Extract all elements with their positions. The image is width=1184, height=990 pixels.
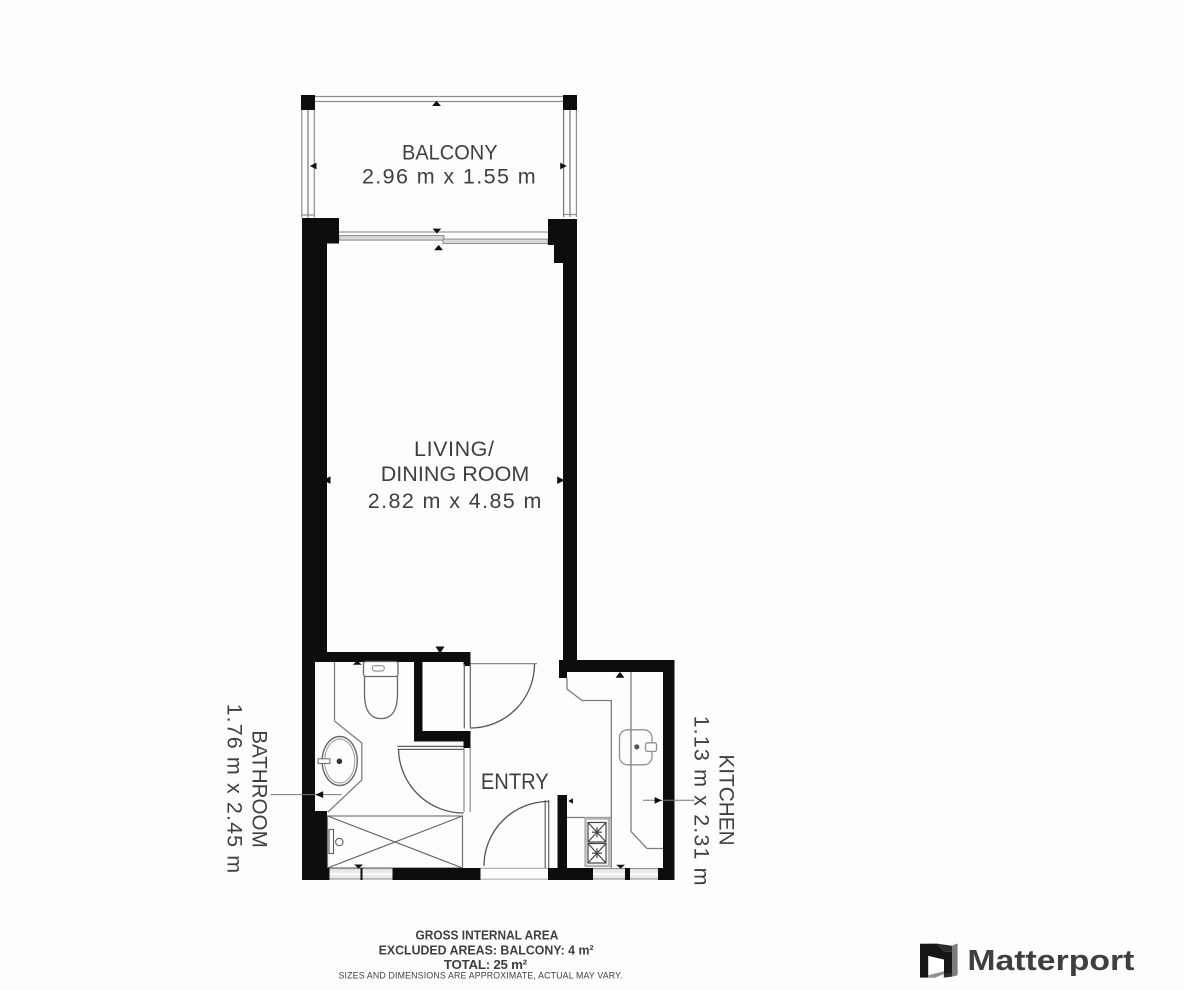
svg-text:EXCLUDED AREAS: BALCONY: 4 m²: EXCLUDED AREAS: BALCONY: 4 m²	[379, 943, 595, 958]
svg-text:Matterport: Matterport	[967, 945, 1134, 977]
svg-text:KITCHEN: KITCHEN	[715, 754, 739, 845]
svg-text:2.82 m x 4.85 m: 2.82 m x 4.85 m	[368, 489, 542, 513]
svg-text:SIZES AND DIMENSIONS ARE APPRO: SIZES AND DIMENSIONS ARE APPROXIMATE, AC…	[339, 971, 623, 981]
svg-text:LIVING/: LIVING/	[414, 437, 494, 461]
svg-text:1.76 m x 2.45 m: 1.76 m x 2.45 m	[223, 704, 247, 874]
svg-text:2.96 m x 1.55 m: 2.96 m x 1.55 m	[362, 165, 536, 189]
svg-text:BALCONY: BALCONY	[402, 140, 498, 164]
svg-text:ENTRY: ENTRY	[481, 769, 549, 794]
svg-text:DINING ROOM: DINING ROOM	[381, 462, 530, 486]
svg-text:BATHROOM: BATHROOM	[248, 730, 272, 848]
svg-text:GROSS INTERNAL AREA: GROSS INTERNAL AREA	[416, 927, 559, 942]
